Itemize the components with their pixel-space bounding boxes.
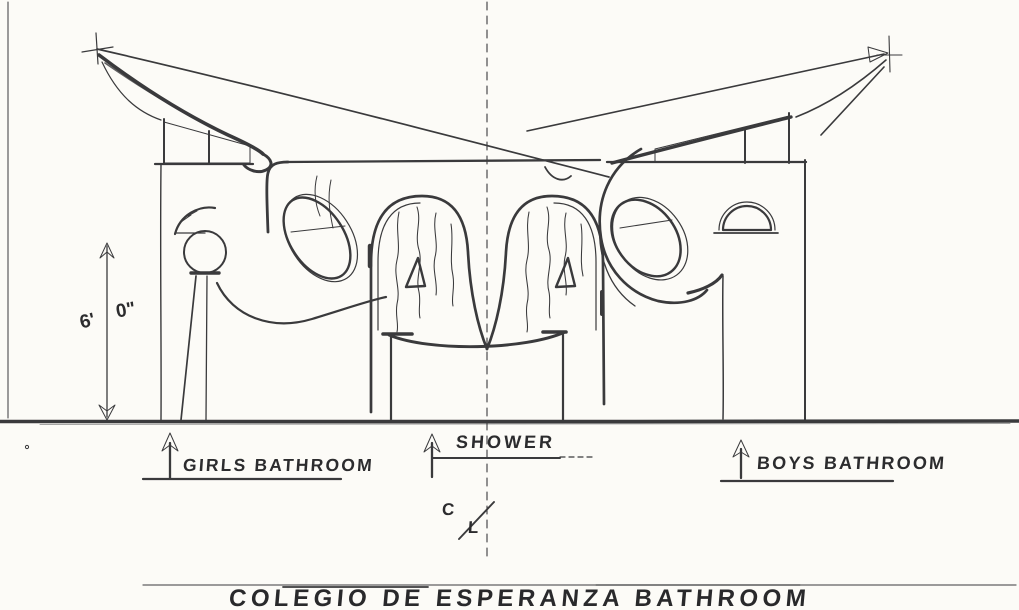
height-dimension-inches: 0" (114, 299, 137, 321)
triangle-mark-left (406, 258, 425, 287)
girls-bathroom-label: GIRLS BATHROOM (182, 457, 374, 475)
elevation-sketch: 6' 0" GIRLS BATHROOM SHOWER BOYS BATHROO… (0, 0, 1019, 610)
privacy-wall (383, 332, 566, 420)
dark-oval-window (597, 183, 703, 295)
boys-bathroom-label: BOYS BATHROOM (756, 454, 947, 472)
arch-window-right (723, 206, 771, 230)
paper-guide-lines (8, 2, 1016, 587)
height-dimension-line (99, 243, 115, 420)
centerline-label-l: L (467, 519, 479, 536)
centerline-label-c: C (441, 501, 454, 518)
roof-wing-right (527, 36, 902, 163)
roof-wing-left (82, 33, 609, 177)
shower-label: SHOWER (455, 433, 555, 451)
ball-pedestal (175, 207, 226, 420)
central-wall (217, 160, 600, 323)
arch-texture (396, 207, 583, 332)
ground-line (0, 421, 1019, 425)
drawing-title: COLEGIO DE ESPERANZA BATHROOM (228, 587, 811, 610)
sketch-linework (0, 0, 1019, 610)
leaf-window (268, 181, 372, 295)
